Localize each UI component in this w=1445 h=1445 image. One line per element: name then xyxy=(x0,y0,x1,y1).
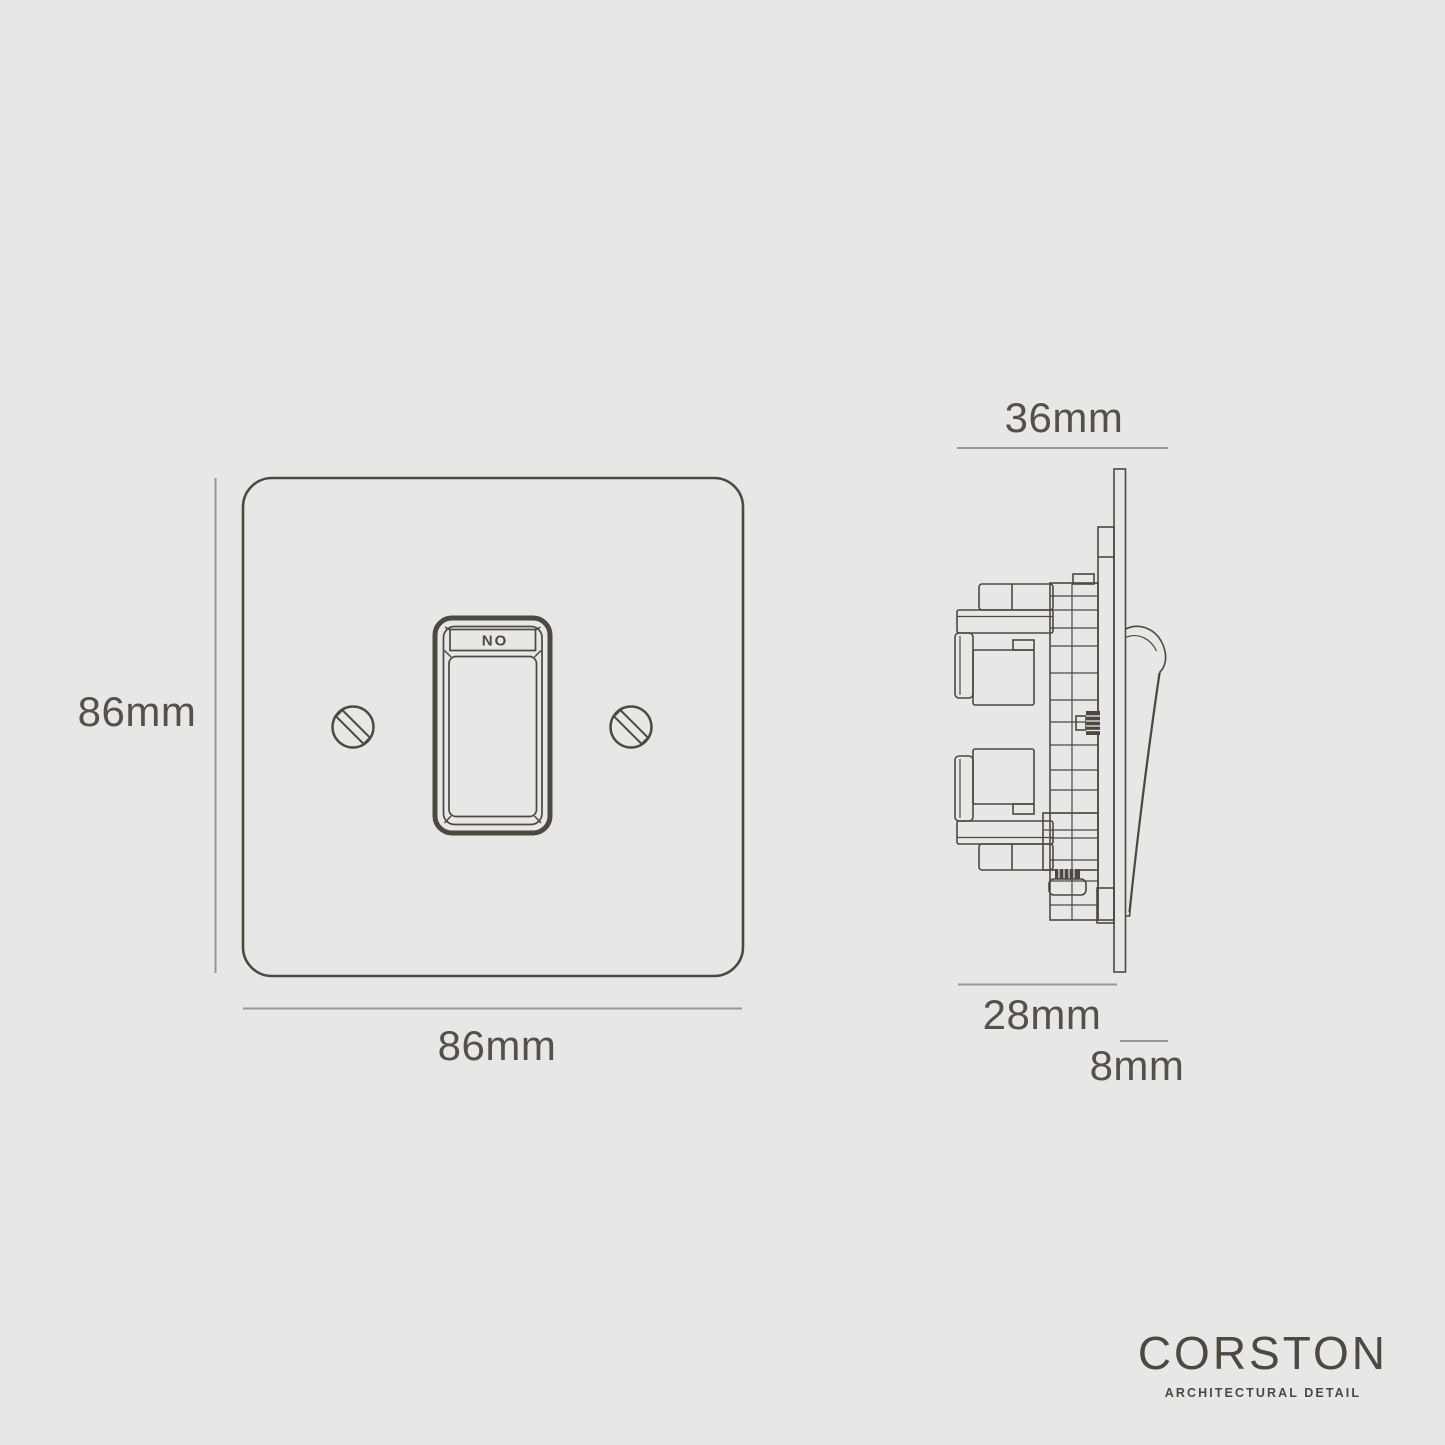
side-bottom-bracket xyxy=(1043,813,1098,895)
front-dimension-lines xyxy=(216,478,743,1009)
side-plate-depth-label: 8mm xyxy=(1090,1042,1185,1090)
rocker-on-label: ON xyxy=(479,632,506,649)
dimension-drawing: ON 86mm 86mm 36mm 28mm 8mm CORSTON ARCHI… xyxy=(0,0,1445,1445)
rocker-face xyxy=(449,657,537,817)
screw-left-icon xyxy=(333,707,374,748)
side-mechanism-body xyxy=(1050,574,1098,920)
side-rocker-lever xyxy=(1126,626,1166,916)
side-terminal-cluster-top xyxy=(955,584,1053,705)
side-terminal-cluster-bottom xyxy=(955,749,1053,870)
screw-right-icon xyxy=(611,707,652,748)
front-height-label: 86mm xyxy=(78,688,197,736)
side-mechanism-depth-label: 28mm xyxy=(983,991,1102,1039)
brand-name: CORSTON xyxy=(1138,1330,1388,1376)
front-view xyxy=(243,478,743,976)
side-terminal-screw xyxy=(1076,711,1100,735)
side-faceplate xyxy=(1114,469,1126,972)
front-width-label: 86mm xyxy=(438,1022,557,1070)
side-view xyxy=(955,469,1166,972)
switch-line-drawing xyxy=(0,0,1445,1445)
brand-logo: CORSTON ARCHITECTURAL DETAIL xyxy=(1138,1330,1388,1400)
side-module-front xyxy=(1098,527,1114,920)
brand-tagline: ARCHITECTURAL DETAIL xyxy=(1138,1386,1388,1400)
front-faceplate-outline xyxy=(243,478,743,976)
side-overall-depth-label: 36mm xyxy=(1005,394,1124,442)
side-plate-bracket xyxy=(1097,888,1114,923)
